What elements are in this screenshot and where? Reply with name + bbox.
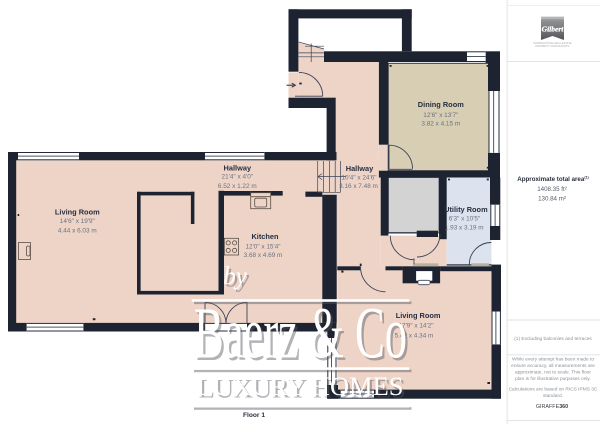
svg-text:12'6" x 13'7": 12'6" x 13'7"	[423, 112, 458, 119]
svg-text:10'4" x 24'6": 10'4" x 24'6"	[341, 174, 376, 181]
svg-text:3.68 x 4.69 m: 3.68 x 4.69 m	[244, 252, 283, 259]
svg-text:GIRAFFE360: GIRAFFE360	[536, 404, 568, 410]
svg-text:(1) Excluding balconies and te: (1) Excluding balconies and terraces	[514, 336, 592, 342]
svg-text:3.16 x 7.48 m: 3.16 x 7.48 m	[339, 183, 378, 190]
svg-text:Living Room: Living Room	[55, 207, 100, 216]
svg-text:Hallway: Hallway	[224, 163, 252, 172]
svg-text:ensure accuracy, all measureme: ensure accuracy, all measurements are	[511, 363, 595, 369]
svg-text:4.44 x 6.03 m: 4.44 x 6.03 m	[58, 227, 97, 234]
svg-text:1.93 x 3.19 m: 1.93 x 3.19 m	[445, 224, 484, 231]
svg-text:3.82 x 4.15 m: 3.82 x 4.15 m	[421, 121, 460, 128]
svg-text:standard.: standard.	[543, 393, 563, 399]
svg-text:plan is for illustrative purpo: plan is for illustrative purposes only.	[515, 376, 591, 382]
svg-text:12'0" x 15'4": 12'0" x 15'4"	[245, 243, 280, 250]
svg-text:PROPERTY CONSULTANTS: PROPERTY CONSULTANTS	[535, 44, 569, 48]
svg-text:Calculations are based on RICS: Calculations are based on RICS IPMS 3C	[509, 387, 598, 393]
svg-text:6.52 x 1.22 m: 6.52 x 1.22 m	[218, 183, 257, 190]
svg-text:Hallway: Hallway	[346, 164, 374, 173]
svg-text:21'4" x 4'0": 21'4" x 4'0"	[222, 174, 254, 181]
svg-text:approximate, not to scale. Thi: approximate, not to scale. This floor	[515, 370, 591, 376]
svg-text:Floor 1: Floor 1	[243, 412, 265, 419]
svg-text:1408.35 ft²: 1408.35 ft²	[537, 186, 567, 193]
svg-text:14'6" x 19'9": 14'6" x 19'9"	[60, 218, 95, 225]
svg-text:Dining Room: Dining Room	[418, 100, 464, 109]
svg-text:Gilbert: Gilbert	[542, 25, 565, 34]
svg-text:Kitchen: Kitchen	[251, 232, 279, 241]
svg-text:Utility Room: Utility Room	[444, 205, 488, 214]
svg-text:Approximate total area(1): Approximate total area(1)	[517, 176, 589, 183]
svg-text:While every attempt has been m: While every attempt has been made to	[512, 357, 594, 363]
svg-text:6'3" x 10'5": 6'3" x 10'5"	[449, 216, 481, 223]
svg-text:130.84 m²: 130.84 m²	[538, 195, 566, 202]
